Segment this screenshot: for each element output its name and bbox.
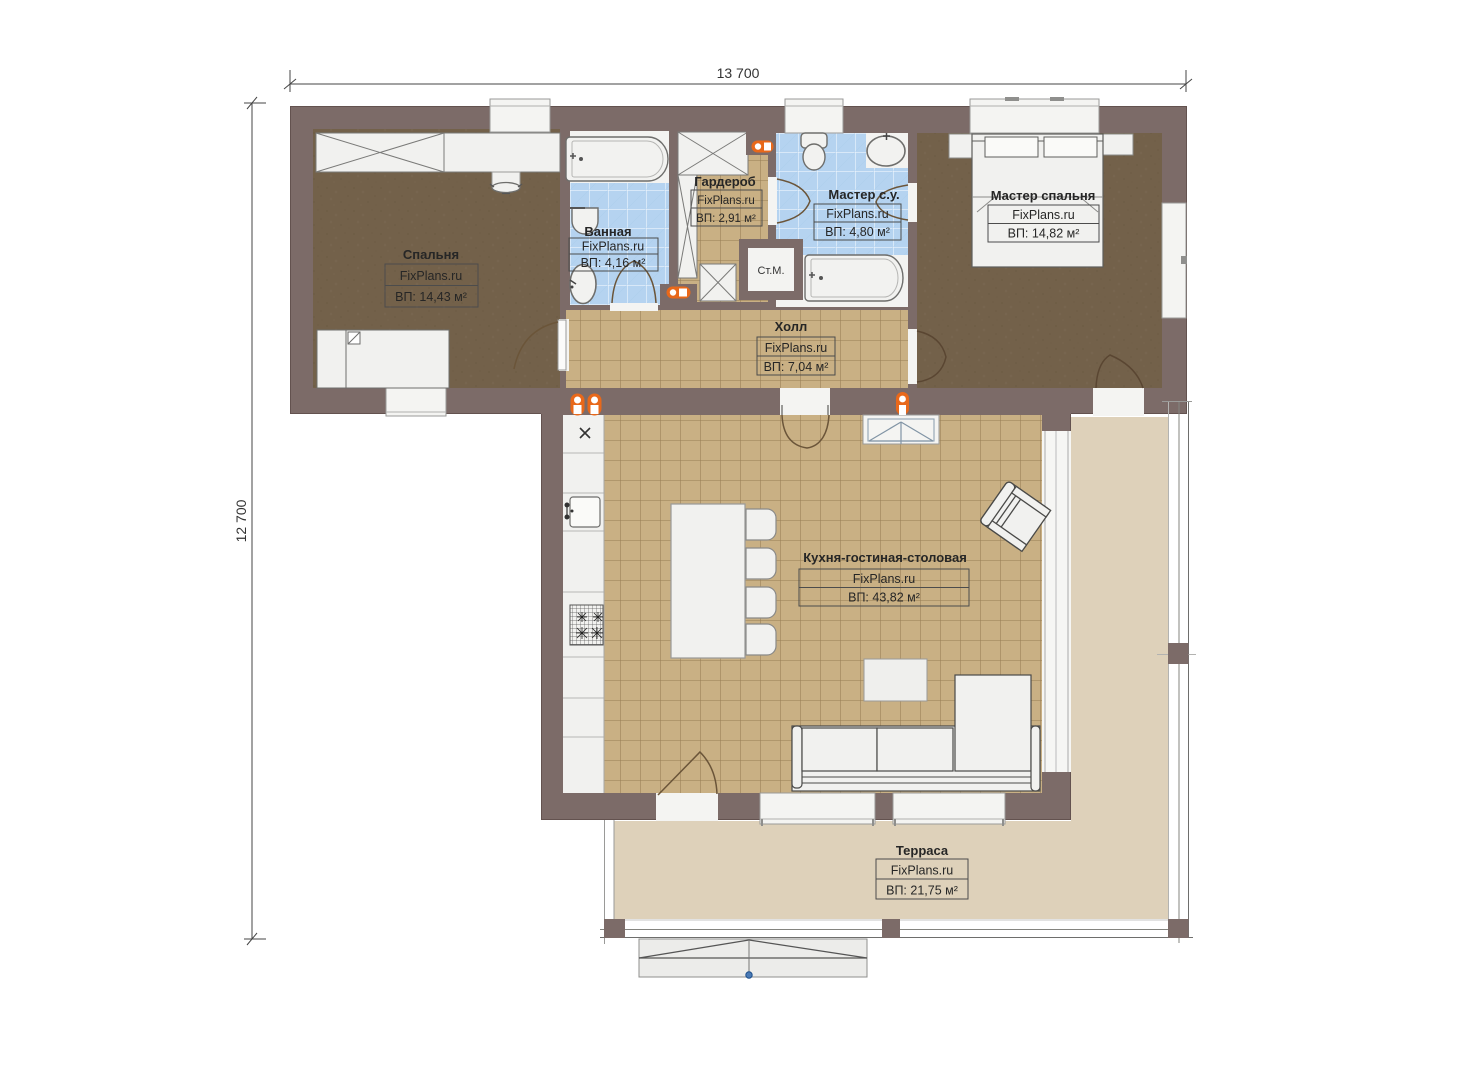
- svg-text:ВП: 7,04 м²: ВП: 7,04 м²: [764, 360, 829, 374]
- svg-text:ВП: 14,43 м²: ВП: 14,43 м²: [395, 290, 467, 304]
- svg-text:Холл: Холл: [775, 319, 808, 334]
- svg-text:Спальня: Спальня: [403, 247, 459, 262]
- svg-text:FixPlans.ru: FixPlans.ru: [826, 207, 889, 221]
- svg-text:FixPlans.ru: FixPlans.ru: [582, 240, 645, 254]
- svg-text:Мастер с.у.: Мастер с.у.: [828, 187, 899, 202]
- svg-text:Ванная: Ванная: [584, 224, 631, 239]
- svg-text:FixPlans.ru: FixPlans.ru: [697, 195, 755, 207]
- svg-text:ВП: 4,80 м²: ВП: 4,80 м²: [825, 225, 890, 239]
- svg-text:ВП: 14,82 м²: ВП: 14,82 м²: [1008, 227, 1080, 241]
- svg-text:ВП: 21,75 м²: ВП: 21,75 м²: [886, 884, 958, 898]
- svg-text:FixPlans.ru: FixPlans.ru: [1012, 208, 1075, 222]
- svg-text:ВП: 2,91 м²: ВП: 2,91 м²: [696, 213, 756, 225]
- svg-text:ВП: 4,16 м²: ВП: 4,16 м²: [581, 256, 646, 270]
- svg-text:Мастер спальня: Мастер спальня: [991, 188, 1096, 203]
- svg-text:Терраса: Терраса: [896, 843, 949, 858]
- svg-text:FixPlans.ru: FixPlans.ru: [765, 341, 828, 355]
- svg-text:Кухня-гостиная-столовая: Кухня-гостиная-столовая: [803, 550, 967, 565]
- svg-text:13 700: 13 700: [717, 65, 760, 81]
- svg-text:FixPlans.ru: FixPlans.ru: [891, 864, 954, 878]
- svg-text:ВП: 43,82 м²: ВП: 43,82 м²: [848, 591, 920, 605]
- svg-text:12 700: 12 700: [233, 499, 249, 542]
- svg-text:FixPlans.ru: FixPlans.ru: [853, 572, 916, 586]
- svg-text:Ст.М.: Ст.М.: [757, 265, 784, 277]
- svg-text:FixPlans.ru: FixPlans.ru: [400, 269, 463, 283]
- svg-text:Гардероб: Гардероб: [694, 174, 755, 189]
